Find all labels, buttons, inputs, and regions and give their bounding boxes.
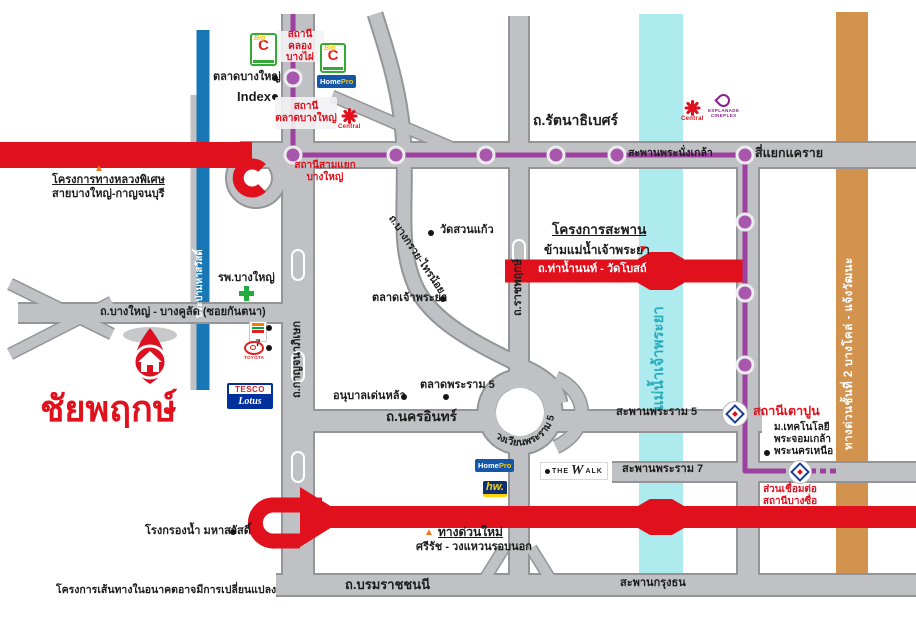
toyota-oval-icon bbox=[244, 341, 264, 355]
anuban-denla-label: อนุบาลเด่นหล้า bbox=[333, 390, 406, 403]
motorway-project-label-2: สายบางใหญ่-กาญจนบุรี bbox=[52, 188, 165, 201]
wat-suan-kaew-label: วัดสวนแก้ว bbox=[440, 224, 494, 237]
central-logo: Central bbox=[681, 100, 704, 122]
poi-dot bbox=[440, 296, 446, 302]
stage2-expressway-label: ทางด่วนชั้นที่ 2 บางโคล่ - แจ้งวัฒนะ bbox=[843, 185, 857, 450]
phra-nangklao-bridge-label: สะพานพระนั่งเกล้า bbox=[628, 147, 713, 159]
toyota-logo: TOYOTA bbox=[244, 341, 264, 360]
seven-eleven-logo: 7 bbox=[249, 321, 267, 342]
talat-rama5-label: ตลาดพระราม 5 bbox=[420, 379, 495, 392]
home-icon-door bbox=[147, 365, 153, 372]
walk-w-letter: W bbox=[571, 464, 583, 478]
station-box-khlong-bang-phai: สถานี คลองบางไผ่ bbox=[276, 31, 324, 62]
poi-dot bbox=[266, 345, 272, 351]
poi-dot bbox=[266, 325, 272, 331]
mrt-logo bbox=[722, 401, 748, 427]
big-c-word: Big bbox=[254, 35, 265, 42]
homepro-pro: Pro bbox=[499, 461, 512, 470]
bang-sue-link-label: ส่วนเชื่อมต่อ สถานีบางซื่อ bbox=[762, 484, 818, 508]
toyota-word: TOYOTA bbox=[244, 355, 264, 360]
disclaimer-text: โครงการเส้นทางในอนาคตอาจมีการเปลี่ยนแปลง bbox=[56, 584, 276, 596]
interchange-hook bbox=[238, 164, 262, 192]
rattanathibet-label: ถ.รัตนาธิเบศร์ bbox=[533, 112, 618, 129]
big-c-logo: Big C bbox=[320, 43, 346, 73]
new-expressway-label-1: ทางด่วนใหม่ bbox=[438, 525, 503, 539]
bridge-project-label-1: โครงการสะพาน bbox=[552, 222, 646, 238]
station-box-talat-bang-yai: สถานี ตลาดบางใหญ่ bbox=[275, 97, 337, 129]
mrt-diamond-icon bbox=[790, 462, 810, 482]
bridge-bump-2 bbox=[638, 499, 684, 535]
walk-rest: ALK bbox=[585, 468, 602, 475]
station-sam-yaek-bang-yai-label: สถานีสามแยก บางใหญ่ bbox=[292, 160, 358, 184]
motorway-project-label-1: โครงการทางหลวงพิเศษ bbox=[52, 174, 165, 187]
poi-dot bbox=[428, 230, 434, 236]
khae-rai-intersection-label: สี่แยกแคราย bbox=[755, 146, 823, 161]
poi-dot bbox=[443, 394, 449, 400]
river-label: แม่น้ำเจ้าพระยา bbox=[650, 262, 668, 410]
ratchaphruek-road-label: ถ.ราชพฤกษ์ bbox=[512, 228, 525, 316]
central-logo: Central bbox=[338, 108, 361, 130]
station-talat-bang-yai-label: สถานี ตลาดบางใหญ่ bbox=[275, 101, 337, 125]
big-c-word: Big bbox=[324, 45, 335, 52]
central-word: Central bbox=[338, 124, 361, 130]
lotus-word: Lotus bbox=[229, 396, 271, 407]
tesco-word: TESCO bbox=[229, 385, 271, 396]
borommaratchachonnani-label: ถ.บรมราชชนนี bbox=[345, 577, 430, 592]
cineplex-word: CINEPLEX bbox=[708, 113, 739, 118]
poi-dot bbox=[272, 75, 278, 81]
project-name: ชัยพฤกษ์ bbox=[40, 388, 177, 430]
central-star-icon bbox=[341, 108, 357, 124]
motorway-marker-triangle: ▲ bbox=[94, 164, 104, 174]
central-word: Central bbox=[681, 116, 704, 122]
nakhon-in-road-label: ถ.นครอินทร์ bbox=[386, 409, 457, 425]
homepro-pro: Pro bbox=[341, 77, 354, 86]
location-map: วงเวียนพระราม 5 สถานี คลองบางไผ่ Big C B… bbox=[0, 0, 916, 642]
the-walk-logo: THE W ALK bbox=[540, 462, 608, 480]
mrt-diamond-icon bbox=[725, 404, 745, 424]
the-word: THE bbox=[552, 468, 569, 475]
poi-dot bbox=[401, 394, 407, 400]
talat-chao-phraya-label: ตลาดเจ้าพระยา bbox=[372, 292, 447, 305]
homepro-home: Home bbox=[320, 77, 341, 86]
bang-yai-hospital-label: รพ.บางใหญ่ bbox=[218, 272, 275, 285]
expressway-marker-triangle: ▲ bbox=[424, 528, 434, 538]
index-label: Index bbox=[236, 89, 271, 104]
big-c-strip bbox=[323, 67, 343, 70]
kmutnb-label: ม.เทคโนโลยี พระจอมเกล้า พระนครเหนือ bbox=[774, 422, 833, 457]
project-pin bbox=[118, 322, 182, 392]
esplanade-swirl-icon bbox=[714, 91, 732, 109]
station-khlong-bang-phai-label: สถานี คลองบางไผ่ bbox=[276, 29, 324, 64]
big-c-strip bbox=[253, 60, 274, 63]
esplanade-cineplex-logo: ESPLANADE CINEPLEX bbox=[708, 94, 739, 118]
krung-thon-bridge-label: สะพานกรุงธน bbox=[620, 577, 686, 590]
bang-yai-bang-khulat-label: ถ.บางใหญ่ - บางคูลัด (ซอยกันตนา) bbox=[100, 306, 266, 319]
big-c-logo: Big C bbox=[250, 33, 277, 66]
rama7-bridge-label: สะพานพระราม 7 bbox=[622, 463, 703, 476]
homepro-home: Home bbox=[478, 461, 499, 470]
tha-nam-non-road-label: ถ.ท่าน้ำนนท์ - วัดโบสถ์ bbox=[538, 263, 647, 276]
mrt-logo bbox=[788, 460, 812, 484]
kanchanaphisek-road-label: ถ.กาญจนาภิเษก bbox=[291, 288, 304, 398]
poi-dot bbox=[545, 469, 550, 474]
hw-logo: hw. bbox=[483, 481, 507, 497]
canal-label: ประปามหาสวัสดิ์ bbox=[194, 168, 205, 318]
roundabout-center bbox=[496, 388, 544, 436]
poi-dot bbox=[764, 450, 770, 456]
central-star-icon bbox=[684, 100, 700, 116]
homepro-logo: HomePro bbox=[317, 75, 356, 88]
new-expressway-label-2: ศรีรัช - วงแหวนรอบนอก bbox=[416, 541, 532, 554]
poi-dot bbox=[230, 529, 236, 535]
homepro-logo: HomePro bbox=[475, 459, 514, 472]
tao-pun-station-label: สถานีเตาปูน bbox=[753, 404, 820, 419]
bridge-project-label-2: ข้ามแม่น้ำเจ้าพระยา bbox=[544, 243, 650, 257]
bridge-marker-triangle: ▼ bbox=[638, 245, 648, 255]
talat-bang-yai-market-label: ตลาดบางใหญ่ bbox=[213, 71, 271, 84]
tesco-lotus-logo: TESCO Lotus bbox=[227, 383, 273, 409]
hospital-cross-icon bbox=[239, 286, 254, 301]
